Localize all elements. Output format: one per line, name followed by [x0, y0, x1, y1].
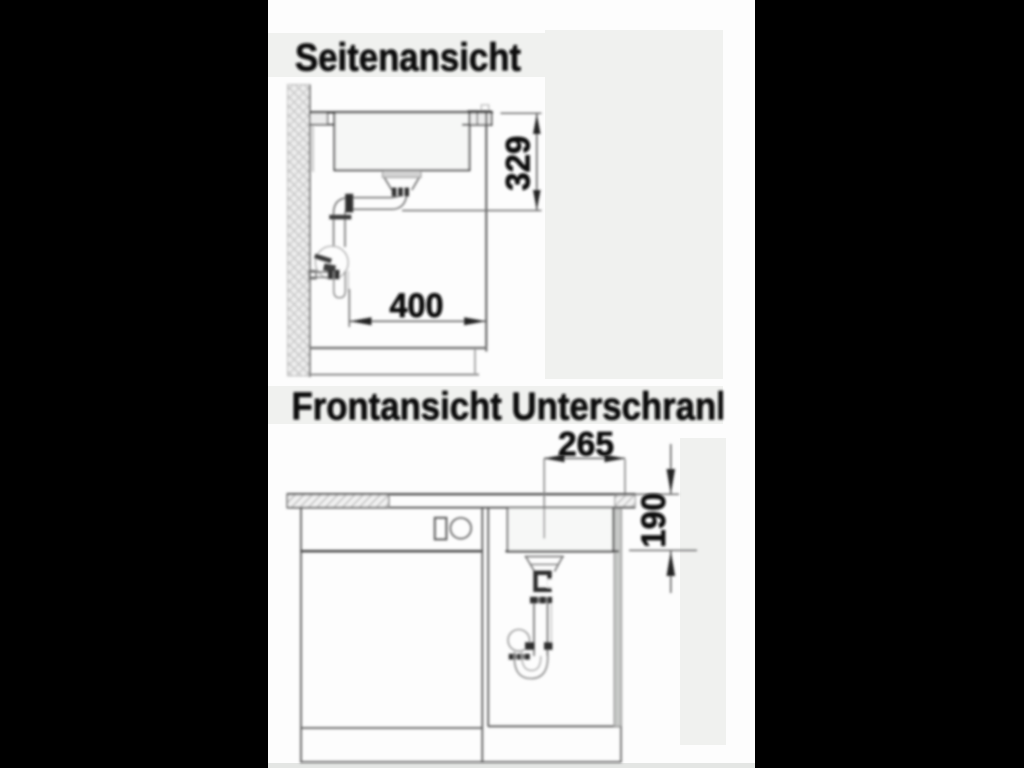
svg-text:190: 190	[635, 493, 673, 548]
svg-text:329: 329	[499, 136, 537, 191]
svg-text:Seitenansicht: Seitenansicht	[295, 37, 521, 80]
svg-text:Frontansicht Unterschrank: Frontansicht Unterschrank	[292, 385, 736, 428]
svg-text:265: 265	[558, 426, 614, 464]
svg-text:400: 400	[390, 287, 444, 325]
